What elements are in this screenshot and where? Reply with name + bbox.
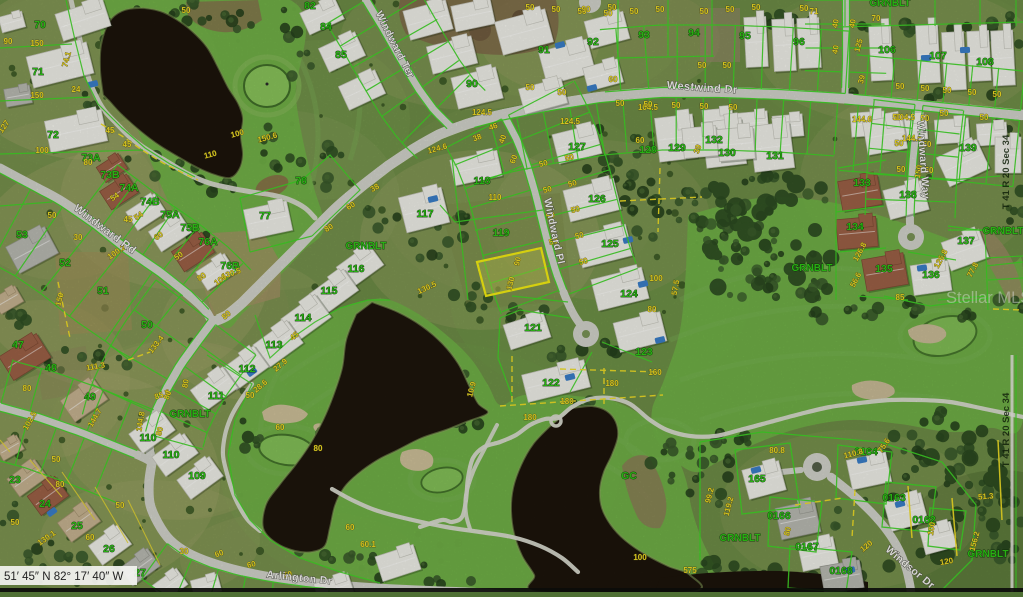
svg-text:51′ 45″ N 82° 17′ 40″ W: 51′ 45″ N 82° 17′ 40″ W [4, 571, 123, 583]
